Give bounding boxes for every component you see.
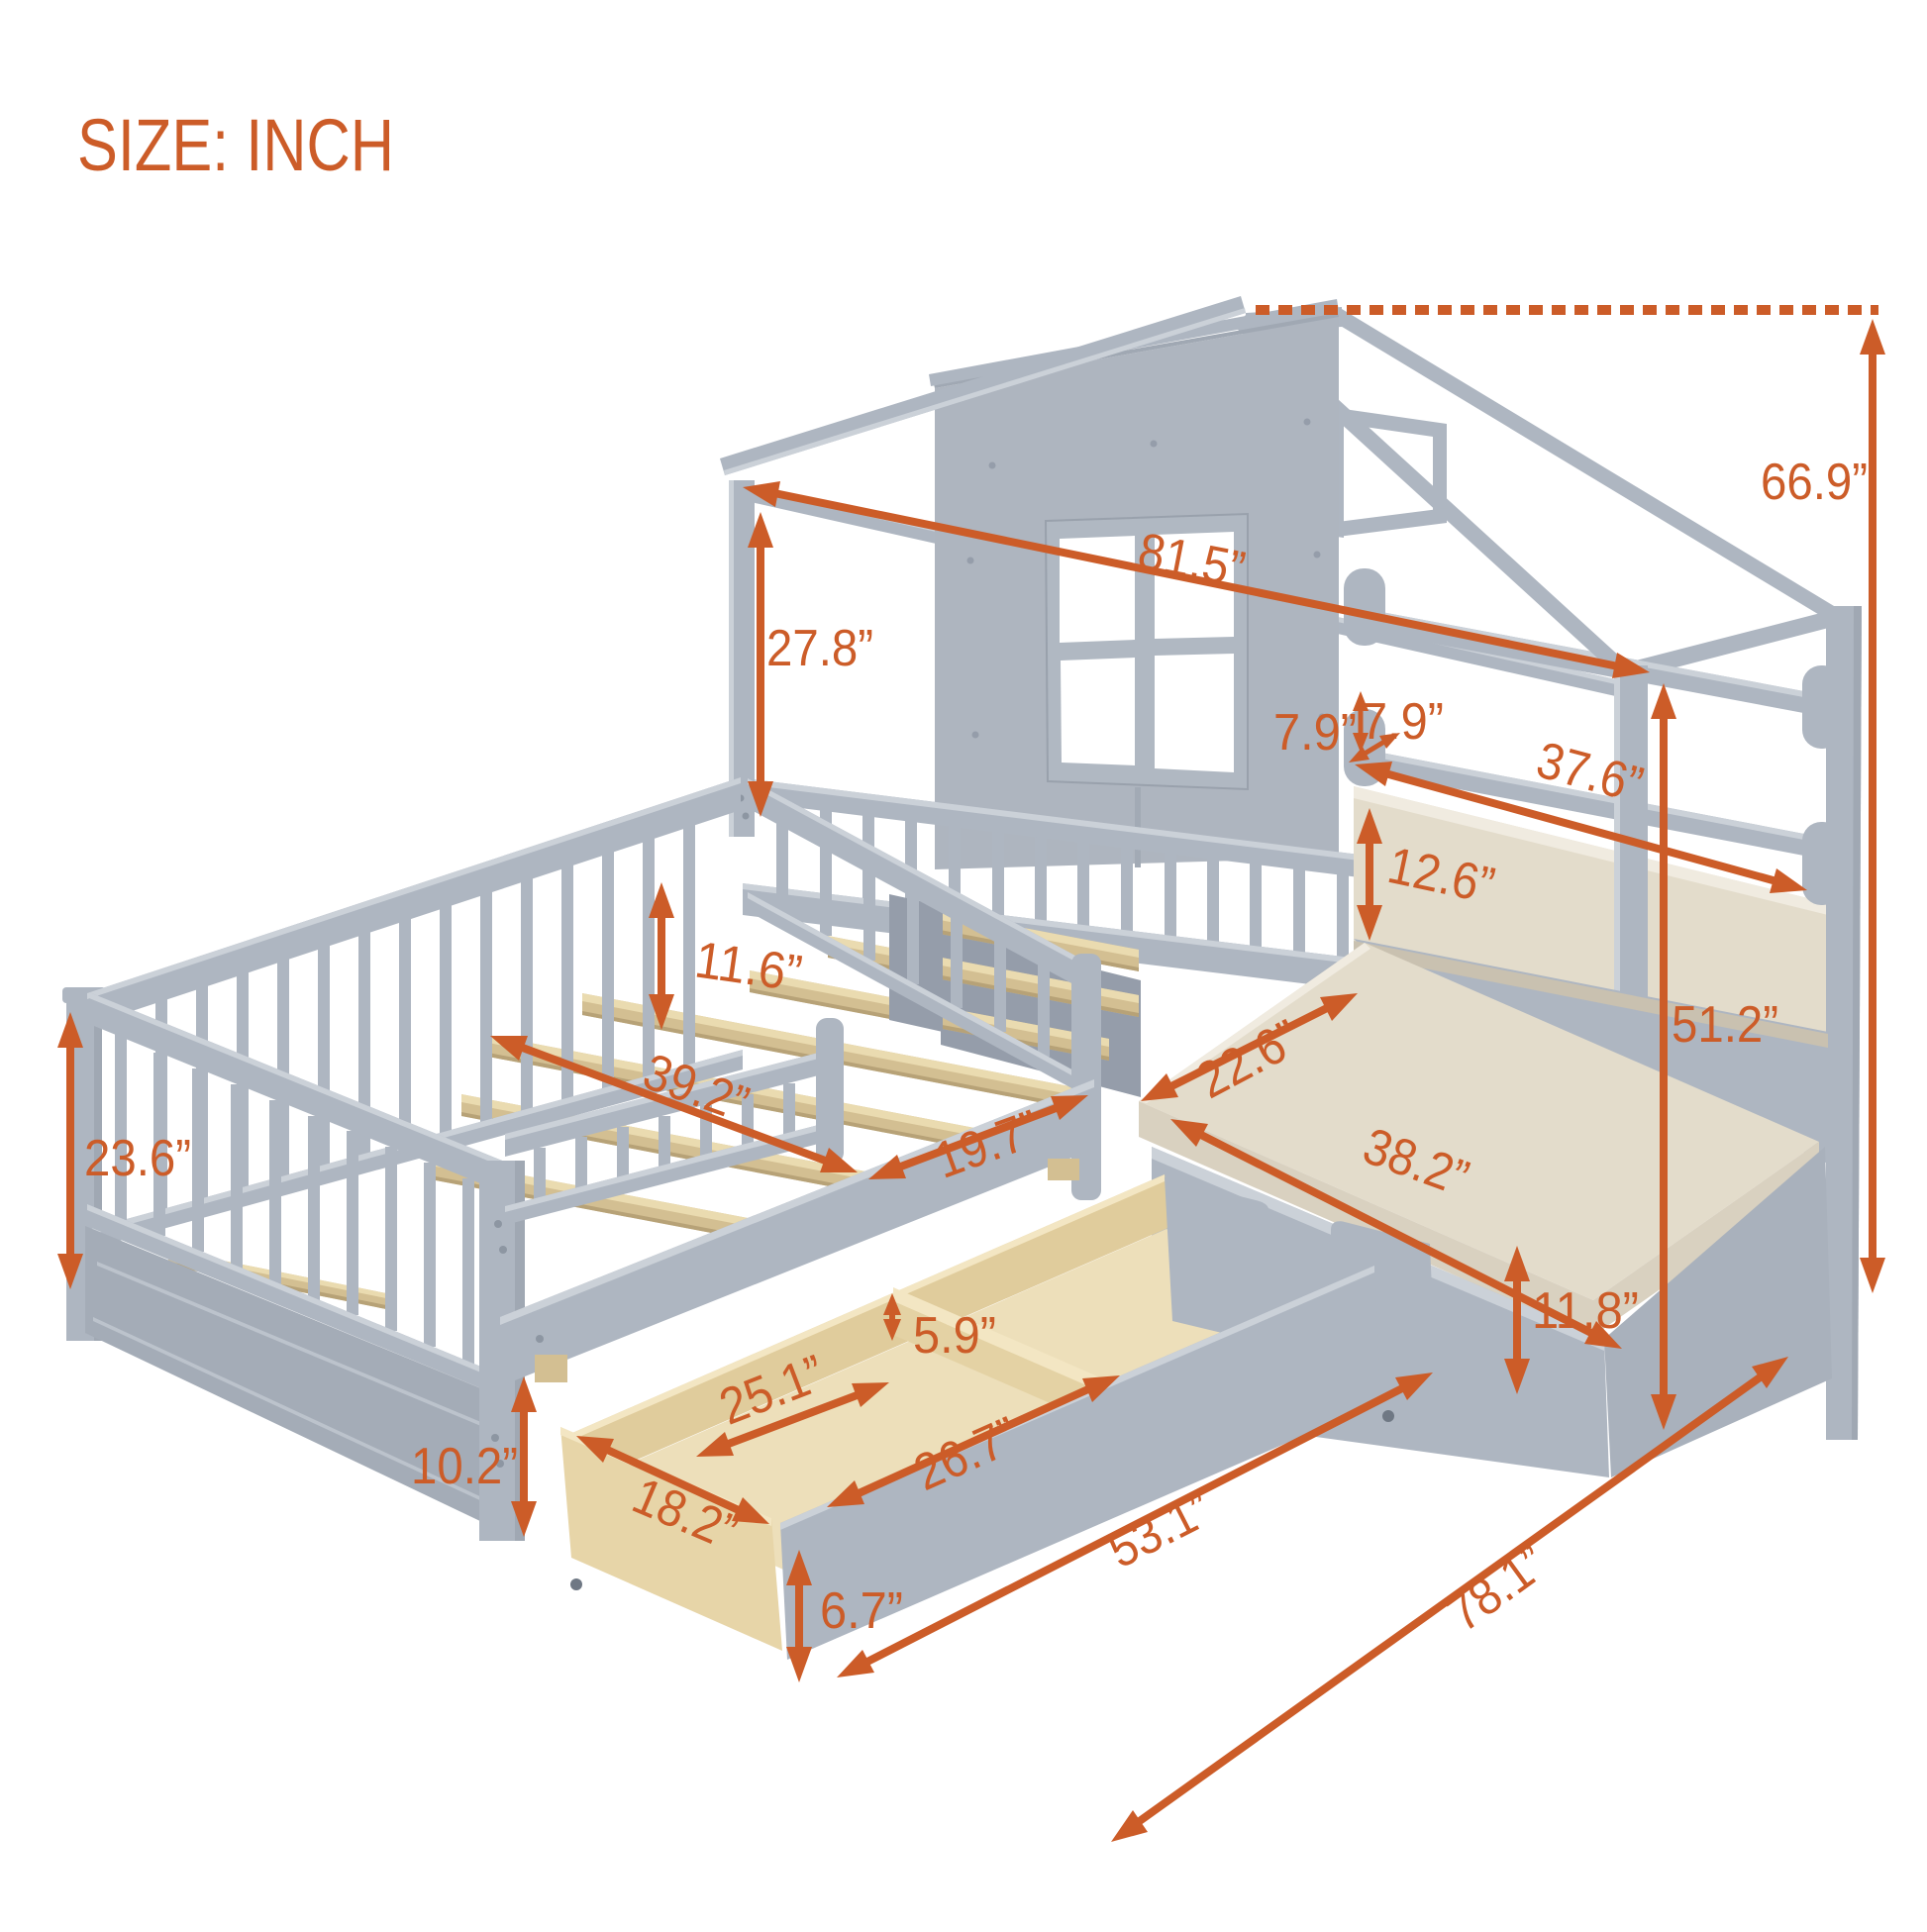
svg-text:11.8”: 11.8”	[1532, 1282, 1639, 1340]
svg-text:SIZE: INCH: SIZE: INCH	[77, 104, 394, 186]
svg-text:7.9”: 7.9”	[1273, 704, 1357, 762]
svg-text:27.8”: 27.8”	[766, 620, 873, 677]
svg-text:10.2”: 10.2”	[411, 1438, 518, 1495]
svg-text:51.2”: 51.2”	[1672, 996, 1778, 1054]
svg-text:6.7”: 6.7”	[820, 1582, 903, 1640]
svg-text:66.9”: 66.9”	[1761, 454, 1868, 511]
svg-text:7.9”: 7.9”	[1361, 693, 1444, 751]
svg-text:23.6”: 23.6”	[84, 1130, 191, 1187]
svg-text:5.9”: 5.9”	[913, 1307, 996, 1365]
